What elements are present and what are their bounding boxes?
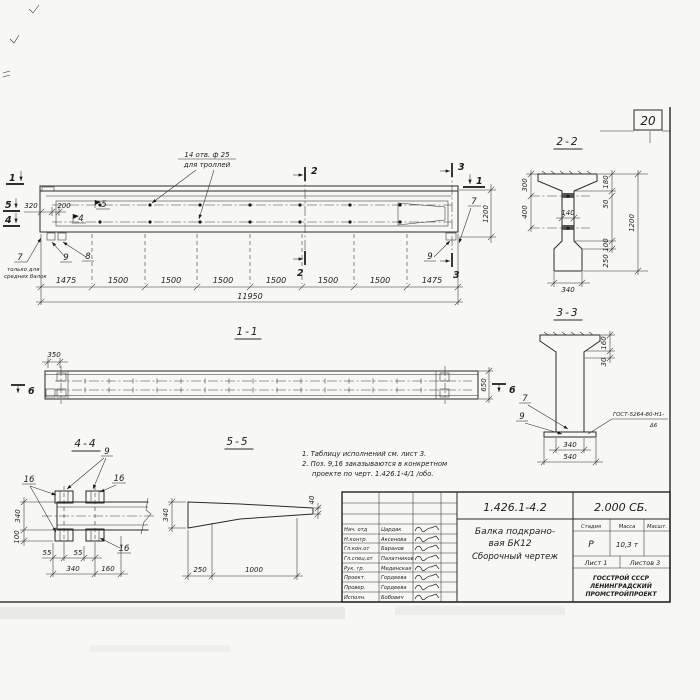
doc-set: 2.000 СБ. bbox=[594, 501, 648, 514]
title-block: 1.426.1-4.2 2.000 СБ. Балка подкрано- ва… bbox=[342, 492, 670, 602]
dim-seg: 1500 bbox=[266, 276, 286, 285]
left-end-dims: 320 200 bbox=[24, 202, 71, 216]
dim-55-b: 55 bbox=[74, 549, 83, 557]
sig-name: Баранов bbox=[381, 546, 404, 552]
dim-seg: 1475 bbox=[56, 276, 76, 285]
section-2-2-title: 2-2 bbox=[556, 136, 579, 148]
dim-320: 320 bbox=[24, 202, 38, 210]
dim-1000: 1000 bbox=[245, 566, 263, 574]
pos-7: 7 bbox=[522, 394, 528, 404]
dim-340: 340 bbox=[162, 508, 170, 522]
dim-540: 540 bbox=[563, 453, 577, 461]
dim-seg: 1500 bbox=[108, 276, 128, 285]
dim-200: 200 bbox=[57, 202, 71, 210]
section-2-2-dims-left: 300 400 140 bbox=[521, 170, 580, 232]
dim-160: 160 bbox=[600, 336, 608, 350]
dim-seg: 1475 bbox=[422, 276, 442, 285]
holes-note-line1: 14 отв. ф 25 bbox=[184, 151, 230, 159]
pos-9: 9 bbox=[104, 447, 109, 457]
org-line-1: ГОССТРОЙ СССР bbox=[593, 574, 650, 582]
stage-value: Р bbox=[588, 540, 594, 550]
sig-name: Цардак bbox=[381, 527, 402, 533]
elevation-view: 14 отв. ф 25 для троллей 5 4 320 200 1 5… bbox=[3, 151, 496, 305]
sig-role: Провер. bbox=[344, 585, 366, 591]
scale-label: Масшт. bbox=[647, 524, 667, 530]
sig-role: Гл.кон.от bbox=[344, 546, 370, 552]
section-3-3-title: 3-3 bbox=[556, 307, 579, 319]
weld-callout: ГОСТ-5264-80-Н1- Δ6 bbox=[588, 412, 668, 434]
section-1-1-dims: 350 650 bbox=[42, 351, 493, 403]
sig-role: Рук. гр. bbox=[344, 566, 364, 572]
elevation-outline bbox=[40, 186, 458, 240]
mass-label: Масса bbox=[619, 524, 636, 530]
dim-100: 100 bbox=[602, 238, 610, 252]
doc-title-2: вая БК12 bbox=[488, 539, 531, 549]
drawing-sheet: 20 14 отв. ф 25 для троллей 5 4 bbox=[0, 0, 700, 700]
dim-55-a: 55 bbox=[43, 549, 52, 557]
mass-value: 10,3 т bbox=[616, 541, 639, 549]
sig-name: Гордеева bbox=[381, 585, 407, 591]
note-line-1: 1. Таблицу исполнений см. лист 3. bbox=[302, 450, 426, 458]
dim-30: 30 bbox=[600, 357, 608, 366]
doc-title-3: Сборочный чертеж bbox=[472, 552, 558, 562]
cut-3-bottom: 3 bbox=[453, 270, 460, 281]
flag-4: 4 bbox=[78, 214, 83, 224]
cut-5-left: 5 bbox=[5, 200, 12, 211]
cut-2-top: 2 bbox=[311, 166, 318, 177]
section-4-4-dims: 340 100 55 55 340 160 bbox=[13, 497, 128, 577]
holes-note-line2: для троллей bbox=[183, 161, 231, 169]
section-4-4: 4-4 9 16 16 16 bbox=[13, 438, 155, 577]
pos-7: 7 bbox=[17, 253, 23, 263]
sig-role: Гл.спец.от bbox=[344, 556, 374, 562]
doc-title-1: Балка подкрано- bbox=[475, 527, 555, 537]
cut-line-3: 3 3 bbox=[440, 162, 465, 281]
notes-block: 1. Таблицу исполнений см. лист 3. 2. Поз… bbox=[302, 450, 447, 478]
sig-name: Бобович bbox=[381, 595, 404, 601]
sig-name: Аксенова bbox=[380, 537, 407, 543]
section-1-1-title: 1-1 bbox=[236, 326, 259, 338]
sig-name: Мединская bbox=[381, 566, 411, 572]
org-line-3: ПРОМСТРОЙПРОЕКТ bbox=[585, 590, 657, 598]
section-5-5-dims: 340 40 250 1000 bbox=[162, 495, 321, 580]
dim-total: 11950 bbox=[237, 292, 262, 301]
section-4-4-title: 4-4 bbox=[74, 438, 97, 450]
sig-name: Гордеева bbox=[381, 575, 407, 581]
only-note-1: только для bbox=[7, 267, 40, 273]
dim-seg: 1500 bbox=[213, 276, 233, 285]
section-4-4-outline bbox=[42, 486, 155, 546]
cut-1-left: 1 bbox=[9, 173, 16, 184]
org-line-2: ЛЕНИНГРАДСКИЙ bbox=[589, 582, 652, 590]
sheet-info: Лист 1 bbox=[584, 559, 608, 567]
dim-250: 250 bbox=[193, 566, 207, 574]
dim-seg: 1500 bbox=[370, 276, 390, 285]
cut-1-right: 1 bbox=[476, 176, 483, 187]
cut-6-left: 6 bbox=[28, 386, 35, 397]
pos-9-right: 9 bbox=[427, 252, 432, 262]
pos-16: 16 bbox=[119, 544, 130, 554]
pos-16: 16 bbox=[24, 475, 35, 485]
weld-note-bottom: Δ6 bbox=[649, 423, 658, 429]
dim-350: 350 bbox=[47, 351, 61, 359]
pos-labels-right: 9 7 bbox=[424, 197, 481, 262]
pos-8: 8 bbox=[85, 252, 91, 262]
dim-340: 340 bbox=[561, 286, 575, 294]
dim-650: 650 bbox=[480, 378, 488, 392]
dim-180: 180 bbox=[602, 175, 610, 189]
dim-1200-elev: 1200 bbox=[482, 205, 490, 223]
holes-note: 14 отв. ф 25 для троллей bbox=[152, 151, 236, 219]
sig-name: Палатников bbox=[381, 556, 414, 562]
dim-1200-sec: 1200 bbox=[628, 214, 636, 232]
stage-label: Стадия bbox=[581, 524, 601, 530]
section-2-2: 2-2 300 400 140 180 50 100 250 120 bbox=[521, 136, 648, 294]
pos-16: 16 bbox=[114, 474, 125, 484]
cut-line-2: 2 2 bbox=[293, 166, 318, 279]
elevation-dim-chain: 1475 1500 1500 1500 1500 1500 1500 1475 … bbox=[36, 234, 463, 305]
cut-4-left: 4 bbox=[4, 215, 12, 226]
sig-role: Исполн. bbox=[344, 595, 366, 601]
sheet-frame: 20 bbox=[0, 107, 670, 602]
dim-100: 100 bbox=[13, 530, 21, 544]
doc-number: 1.426.1-4.2 bbox=[483, 501, 546, 514]
section-1-1: 1-1 350 650 6 6 bbox=[11, 326, 516, 404]
sheets-info: Листов 3 bbox=[629, 559, 660, 567]
dim-50: 50 bbox=[602, 199, 610, 208]
sig-role: Проект. bbox=[344, 575, 365, 581]
cut-marks-left: 1 5 4 bbox=[3, 171, 24, 226]
elevation-centerlines bbox=[52, 205, 452, 222]
drawing-canvas: 20 14 отв. ф 25 для троллей 5 4 bbox=[0, 0, 700, 700]
dim-340-h: 340 bbox=[66, 565, 80, 573]
dim-140: 140 bbox=[561, 209, 575, 217]
dim-160: 160 bbox=[101, 565, 115, 573]
section-5-5-outline bbox=[188, 502, 313, 528]
scan-shadows bbox=[0, 606, 565, 652]
section-5-5-title: 5-5 bbox=[226, 436, 249, 448]
pos-9: 9 bbox=[519, 412, 524, 422]
section-4-4-pos: 9 16 16 16 bbox=[22, 447, 131, 554]
dim-250: 250 bbox=[602, 254, 610, 268]
section-1-1-outline bbox=[45, 366, 478, 404]
trolley-holes bbox=[98, 203, 401, 223]
section-5-5: 5-5 340 40 250 1000 bbox=[162, 436, 321, 580]
scan-marks bbox=[3, 5, 39, 77]
cut-2-bottom: 2 bbox=[297, 268, 304, 279]
signature-rows: Нач. отд Цардак Н.контр. Аксенова Гл.кон… bbox=[344, 526, 439, 601]
cut-3-top: 3 bbox=[458, 162, 465, 173]
dim-400: 400 bbox=[521, 205, 529, 219]
dim-seg: 1500 bbox=[161, 276, 181, 285]
note-line-2: 2. Поз. 9,16 заказываются в конкретном bbox=[302, 460, 447, 468]
flag-5: 5 bbox=[101, 200, 106, 210]
position-flags: 5 4 bbox=[72, 200, 110, 224]
dim-340: 340 bbox=[563, 441, 577, 449]
dim-seg: 1500 bbox=[318, 276, 338, 285]
pos-7-right: 7 bbox=[471, 197, 477, 207]
sig-role: Н.контр. bbox=[344, 537, 367, 543]
cut-6-right: 6 bbox=[509, 385, 516, 396]
dim-40: 40 bbox=[308, 495, 316, 504]
section-2-2-profile bbox=[530, 174, 597, 271]
elevation-height-dim: 1200 bbox=[459, 184, 496, 243]
dim-340-v: 340 bbox=[14, 509, 22, 523]
section-3-3-profile bbox=[540, 335, 600, 437]
section-3-3-pos: 7 9 bbox=[516, 394, 568, 434]
section-3-3-dims-bottom: 340 540 bbox=[537, 438, 603, 465]
dim-300: 300 bbox=[521, 178, 529, 192]
section-2-2-dim-bottom: 340 bbox=[547, 272, 590, 294]
section-3-3: 3-3 160 30 7 9 ГОСТ-5264-80-Н1- Δ6 3 bbox=[516, 307, 668, 465]
cut-mark-1-right: 1 bbox=[463, 174, 485, 187]
section-1-1-bolt-ticks bbox=[85, 379, 421, 393]
pos-labels-left: 7 только для средних балок 9 8 bbox=[4, 238, 94, 280]
sheet-number: 20 bbox=[640, 114, 656, 128]
note-line-3: проекте по черт. 1.426.1-4/1 /обо. bbox=[312, 470, 434, 478]
sig-role: Нач. отд bbox=[344, 527, 368, 533]
weld-note-top: ГОСТ-5264-80-Н1- bbox=[613, 412, 664, 418]
